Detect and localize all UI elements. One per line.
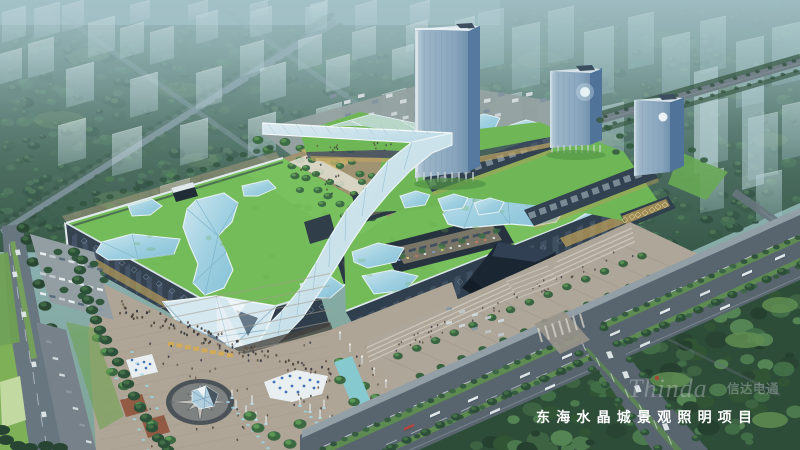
svg-text:Thinda: Thinda xyxy=(628,374,708,403)
svg-text:东海水晶城景观照明项目: 东海水晶城景观照明项目 xyxy=(536,409,758,425)
svg-text:信达电通: 信达电通 xyxy=(727,381,779,396)
